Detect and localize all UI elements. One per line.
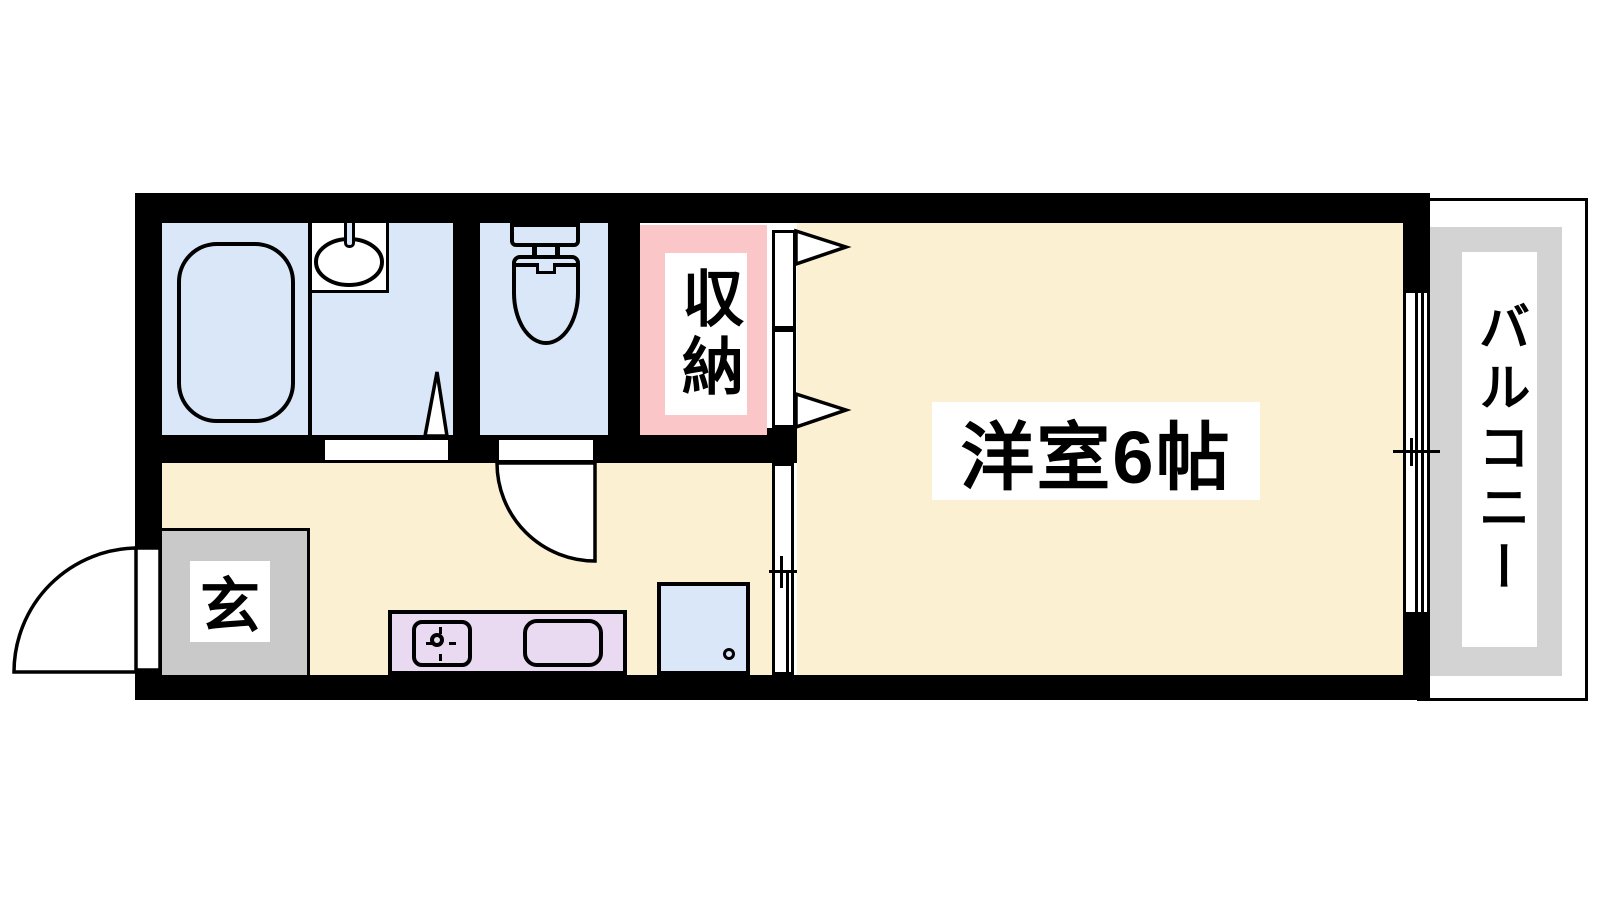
burner-tick (439, 627, 442, 634)
floorplan-canvas: 洋室6帖 収納 玄 バルコニー (0, 0, 1600, 900)
wall-top (135, 193, 1428, 223)
balcony-label: バルコニー (1462, 252, 1537, 647)
toilet-seat-notch (536, 263, 556, 274)
washing-machine-space (657, 582, 750, 675)
kitchen-sink (523, 619, 603, 667)
window-crescent-lock (1393, 450, 1440, 453)
main-room-label: 洋室6帖 (932, 402, 1260, 500)
wall-washroom-toilet (453, 223, 480, 463)
bathtub (177, 242, 295, 423)
sliding-door-handle (769, 570, 797, 573)
sliding-door-panel-edge (786, 572, 789, 675)
washbasin-tap (344, 223, 355, 248)
wall-toilet-closet (608, 223, 640, 463)
toilet-hinge (555, 247, 560, 255)
washing-machine-drain (723, 648, 735, 660)
toilet-tank (510, 223, 580, 247)
burner-tick (439, 654, 442, 661)
wall-bottom (135, 675, 1428, 700)
washroom-door-opening (323, 438, 450, 462)
sliding-door-handle (780, 556, 783, 588)
burner-tick (426, 642, 433, 645)
burner-tick (449, 642, 456, 645)
entrance-label: 玄 (190, 561, 270, 642)
closet-door-panel-bottom (772, 329, 796, 428)
closet-label: 収納 (665, 253, 747, 415)
wall-closet-doorpost (767, 428, 797, 463)
window-crescent-lock (1410, 438, 1413, 466)
closet-door-panel-top (772, 230, 796, 329)
toilet-hinge (532, 247, 537, 255)
entrance-door-swing-arc (14, 548, 138, 672)
main-room-sliding-door (772, 463, 794, 675)
wall-left (135, 193, 162, 700)
toilet-door-opening (497, 438, 595, 462)
